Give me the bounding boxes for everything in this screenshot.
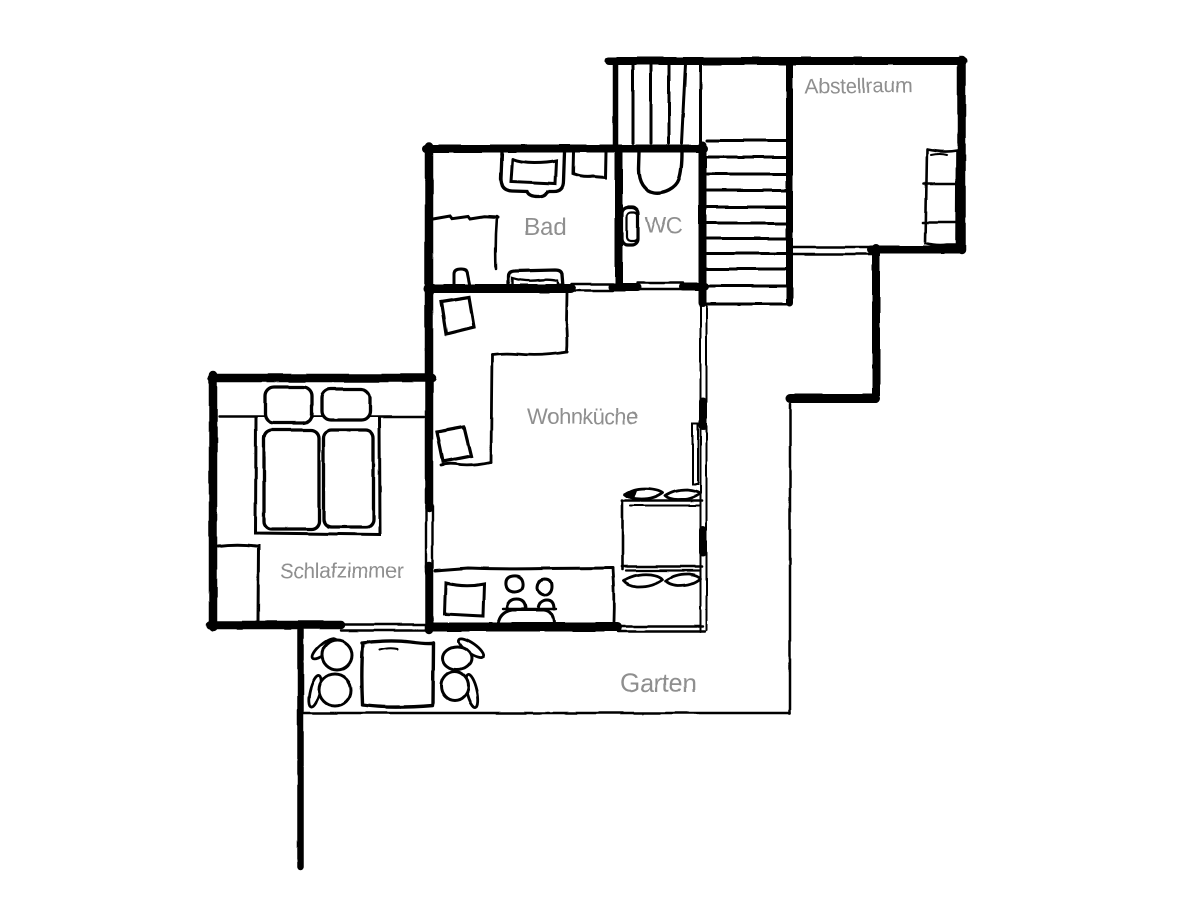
svg-text:Abstellraum: Abstellraum (805, 74, 913, 99)
svg-text:Bad: Bad (524, 214, 567, 241)
svg-text:Garten: Garten (620, 668, 697, 698)
svg-text:WC: WC (645, 212, 682, 238)
svg-text:Schlafzimmer: Schlafzimmer (280, 560, 404, 583)
svg-text:Wohnküche: Wohnküche (527, 404, 639, 429)
